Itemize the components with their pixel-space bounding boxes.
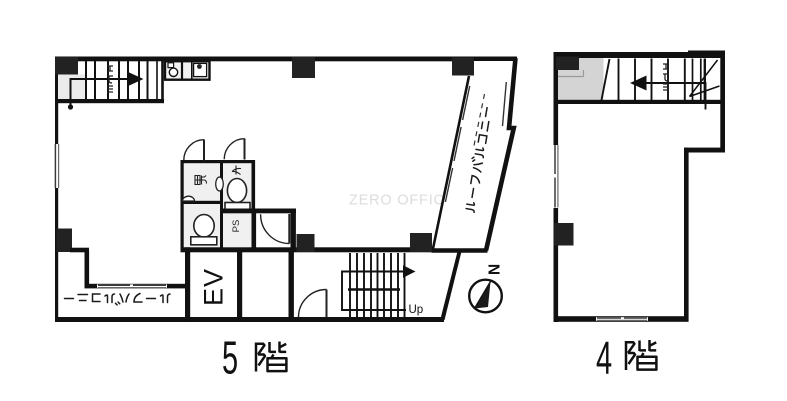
svg-text:5: 5 — [222, 333, 238, 384]
svg-text:PS: PS — [231, 220, 242, 233]
svg-text:4: 4 — [596, 333, 612, 384]
svg-text:ZERO OFFICE: ZERO OFFICE — [349, 193, 455, 209]
svg-text:N: N — [484, 264, 501, 275]
svg-text:EV: EV — [199, 268, 229, 306]
svg-text:Up: Up — [409, 304, 424, 316]
